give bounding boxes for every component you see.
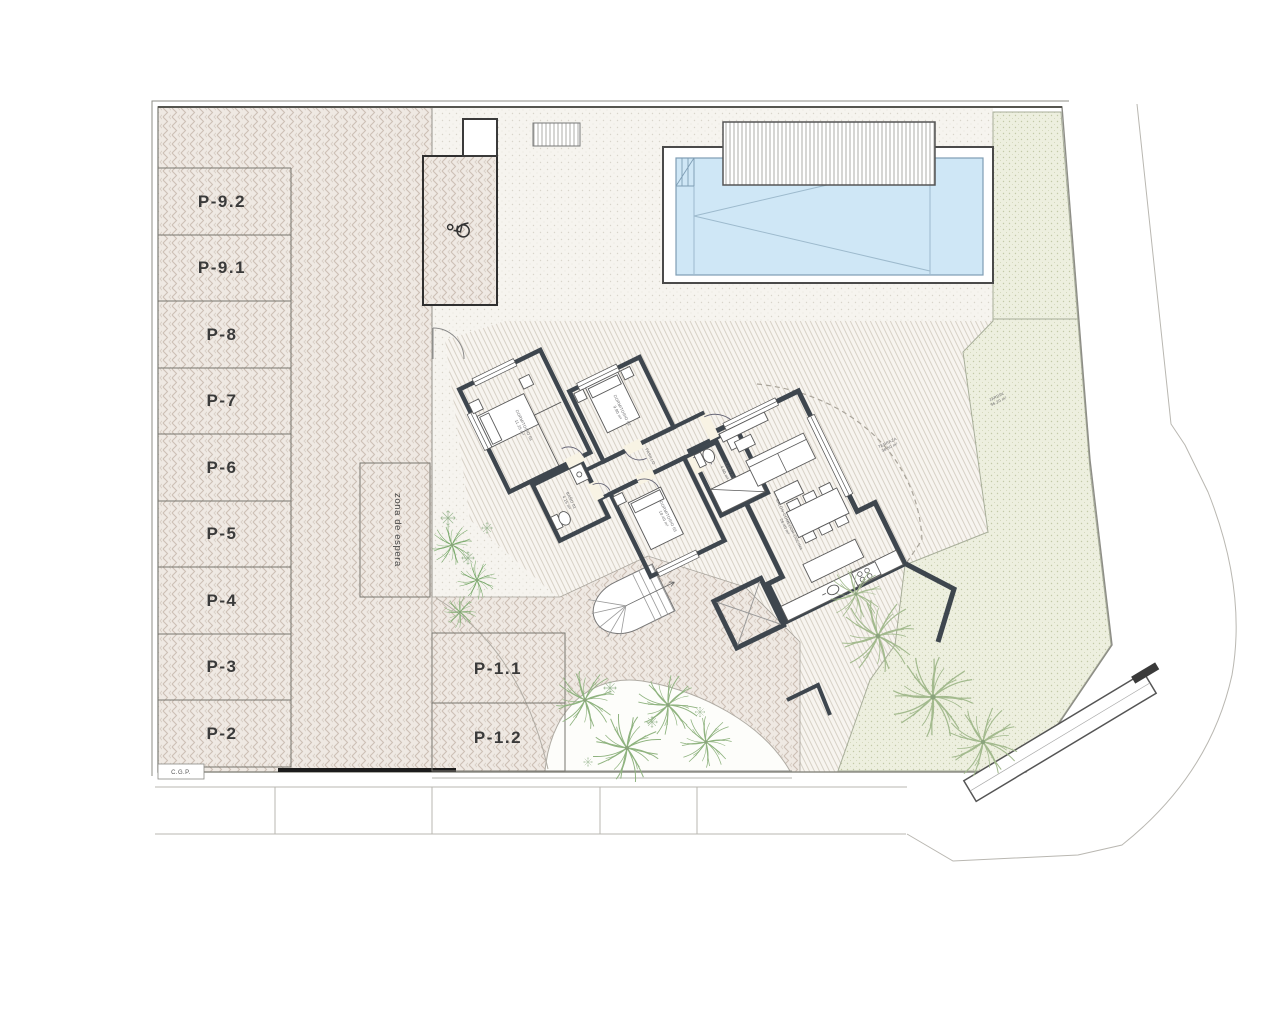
parking-label: P-2: [207, 724, 238, 743]
parking-label: P-7: [207, 391, 238, 410]
parking-label: P-1.1: [474, 659, 522, 678]
site-plan-drawing: P-9.2 P-9.1 P-8 P-7 P-6 P-5 P-4 P-3 P-2 …: [0, 0, 1280, 1024]
parking-label: P-8: [207, 325, 238, 344]
utility-box: [463, 119, 497, 156]
parking-label: P-6: [207, 458, 238, 477]
pool-canopy: [723, 122, 935, 185]
cgp-label: C.G.P.: [171, 770, 191, 776]
waiting-zone-label: zona de espera: [392, 493, 403, 567]
grate-box: [533, 123, 580, 146]
parking-label: P-9.1: [198, 258, 246, 277]
parking-label: P-4: [207, 591, 238, 610]
parking-label: P-9.2: [198, 192, 246, 211]
parking-label: P-3: [207, 657, 238, 676]
parking-label: P-1.2: [474, 728, 522, 747]
pool-area: [663, 122, 993, 283]
parking-label: P-5: [207, 524, 238, 543]
site-plan-page: P-9.2 P-9.1 P-8 P-7 P-6 P-5 P-4 P-3 P-2 …: [0, 0, 1280, 1024]
